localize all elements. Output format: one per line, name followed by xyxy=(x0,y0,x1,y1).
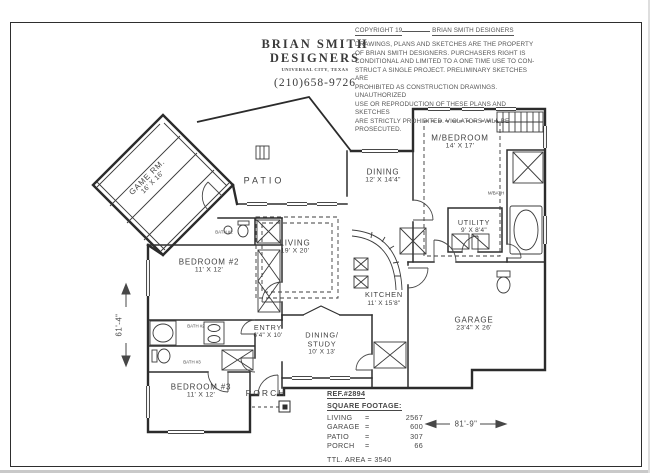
room-label-living: LIVING 19' X 20' xyxy=(279,238,310,255)
room-label-bath2: BATH #2 xyxy=(187,323,205,328)
copyright-text-line: ARE STRICTLY PROHIBITED. VIOLATORS WILL … xyxy=(355,118,541,135)
room-label-entry: ENTRY 6'4" X 10' xyxy=(254,324,283,340)
summary-row: GARAGE = 600 xyxy=(327,423,423,431)
square-footage-summary: REF.#2894 SQUARE FOOTAGE: LIVING = 2567 … xyxy=(327,390,423,464)
summary-heading: SQUARE FOOTAGE: xyxy=(327,402,402,411)
copyright-text-line: DRAWINGS, PLANS AND SKETCHES ARE THE PRO… xyxy=(355,41,541,49)
plan-sheet: BRIAN SMITH DESIGNERS UNIVERSAL CITY, TE… xyxy=(0,0,650,473)
porch-detail xyxy=(252,401,290,412)
copyright-line: COPYRIGHT 19 BRIAN SMITH DESIGNERS xyxy=(355,27,541,35)
copyright-block: COPYRIGHT 19 BRIAN SMITH DESIGNERS DRAWI… xyxy=(355,27,541,134)
dimension-bottom: 81'-9" xyxy=(455,419,478,428)
copyright-label: COPYRIGHT 19 xyxy=(355,27,402,36)
room-label-garage: GARAGE 23'4" X 26' xyxy=(454,315,493,332)
room-label-patio: PATIO xyxy=(244,176,285,187)
game-room-detail xyxy=(97,123,229,251)
room-label-bath3: BATH #3 xyxy=(183,359,201,364)
copyright-year-blank xyxy=(402,31,430,32)
copyright-text-line: STRUCT A SINGLE PROJECT. PRELIMINARY SKE… xyxy=(355,67,541,84)
room-label-master-bath: M/BATH xyxy=(488,190,504,195)
patio-roof-edge xyxy=(197,97,351,151)
room-label-utility: UTILITY 9' X 8'4" xyxy=(458,219,490,235)
room-label-bedroom3: BEDROOM #3 11' X 12' xyxy=(171,382,231,399)
summary-row: PATIO = 307 xyxy=(327,433,423,441)
copyright-text-line: OF BRIAN SMITH DESIGNERS. PURCHASERS RIG… xyxy=(355,50,541,58)
room-label-bedroom2: BEDROOM #2 11' X 12' xyxy=(179,257,239,274)
ref-number: REF.#2894 xyxy=(327,390,365,399)
room-label-dining-study: DINING/ STUDY 10' X 13' xyxy=(305,331,339,356)
summary-total: TTL. AREA = 3540 xyxy=(327,456,423,464)
summary-row: PORCH = 66 xyxy=(327,442,423,450)
copyright-text-line: USE OR REPRODUCTION OF THESE PLANS AND S… xyxy=(355,101,541,118)
door-swings xyxy=(202,182,521,395)
room-label-dining: DINING 12' X 14'4" xyxy=(365,167,401,184)
copyright-owner: BRIAN SMITH DESIGNERS xyxy=(432,27,514,36)
copyright-text-line: PROHIBITED AS CONSTRUCTION DRAWINGS. UNA… xyxy=(355,84,541,101)
copyright-text-line: CONDITIONAL AND LIMITED TO A ONE TIME US… xyxy=(355,58,541,66)
room-label-hall-bath: BATH #2 xyxy=(215,229,233,234)
study-bay-niche xyxy=(303,306,340,315)
room-label-porch: PORCH xyxy=(246,388,287,398)
room-label-kitchen: KITCHEN 11' X 15'8" xyxy=(365,291,403,307)
summary-row: LIVING = 2567 xyxy=(327,414,423,422)
room-label-master-bedroom: M/BEDROOM 14' X 17' xyxy=(431,133,488,150)
dimension-left: 61'-4" xyxy=(114,314,123,337)
